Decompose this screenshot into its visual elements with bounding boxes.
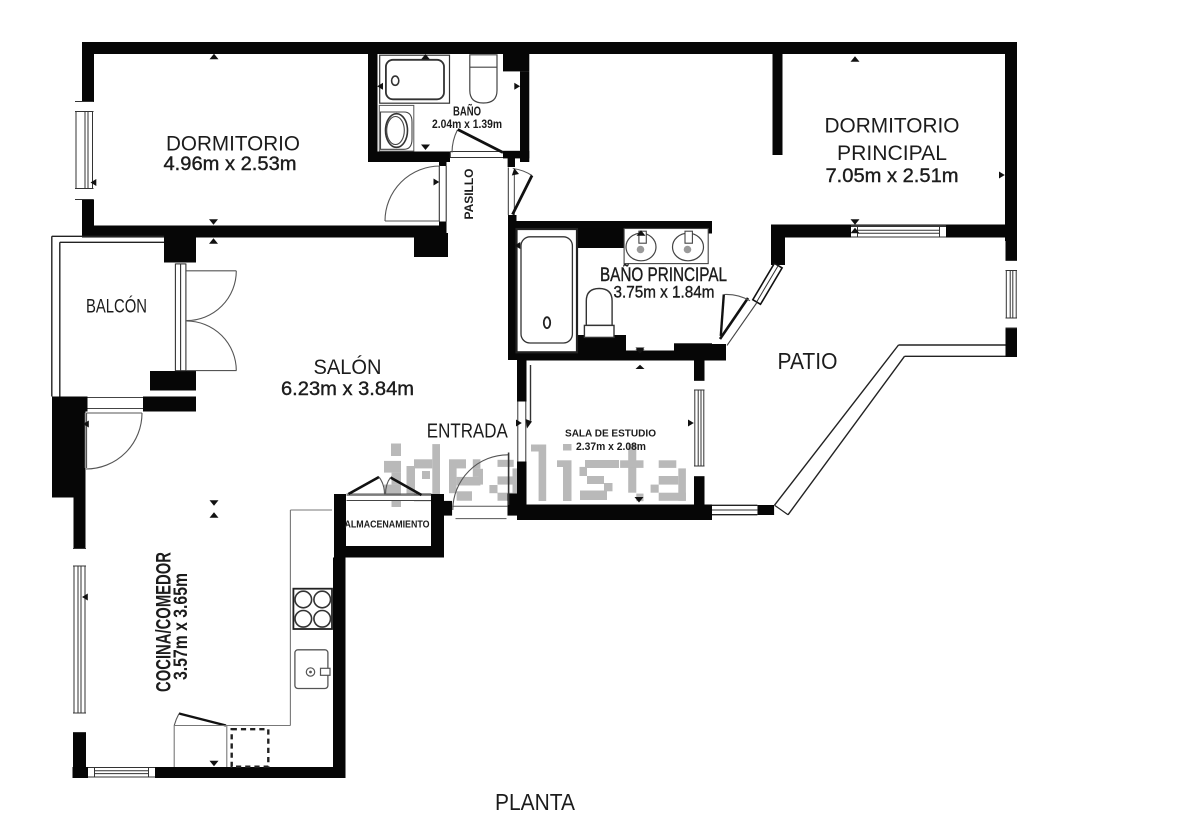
svg-text:7.05m x 2.51m: 7.05m x 2.51m	[826, 166, 959, 187]
svg-text:BALCÓN: BALCÓN	[86, 296, 147, 318]
svg-text:2.37m x 2.08m: 2.37m x 2.08m	[576, 441, 646, 453]
svg-text:ENTRADA: ENTRADA	[427, 421, 509, 443]
svg-text:3.75m x 1.84m: 3.75m x 1.84m	[614, 283, 715, 302]
svg-text:PASILLO: PASILLO	[462, 169, 476, 220]
svg-text:PRINCIPAL: PRINCIPAL	[837, 142, 947, 165]
svg-text:SALÓN: SALÓN	[314, 356, 382, 379]
svg-text:DORMITORIO: DORMITORIO	[825, 115, 960, 138]
svg-text:DORMITORIO: DORMITORIO	[166, 133, 300, 156]
svg-text:PATIO: PATIO	[778, 348, 838, 374]
svg-text:SALA DE ESTUDIO: SALA DE ESTUDIO	[565, 428, 656, 440]
svg-text:PLANTA: PLANTA	[495, 789, 576, 815]
svg-text:6.23m x 3.84m: 6.23m x 3.84m	[281, 379, 414, 400]
svg-text:ALMACENAMIENTO: ALMACENAMIENTO	[345, 518, 430, 530]
svg-text:4.96m x 2.53m: 4.96m x 2.53m	[164, 154, 297, 175]
svg-text:3.57m x 3.65m: 3.57m x 3.65m	[171, 573, 192, 680]
svg-text:2.04m x 1.39m: 2.04m x 1.39m	[432, 117, 502, 131]
